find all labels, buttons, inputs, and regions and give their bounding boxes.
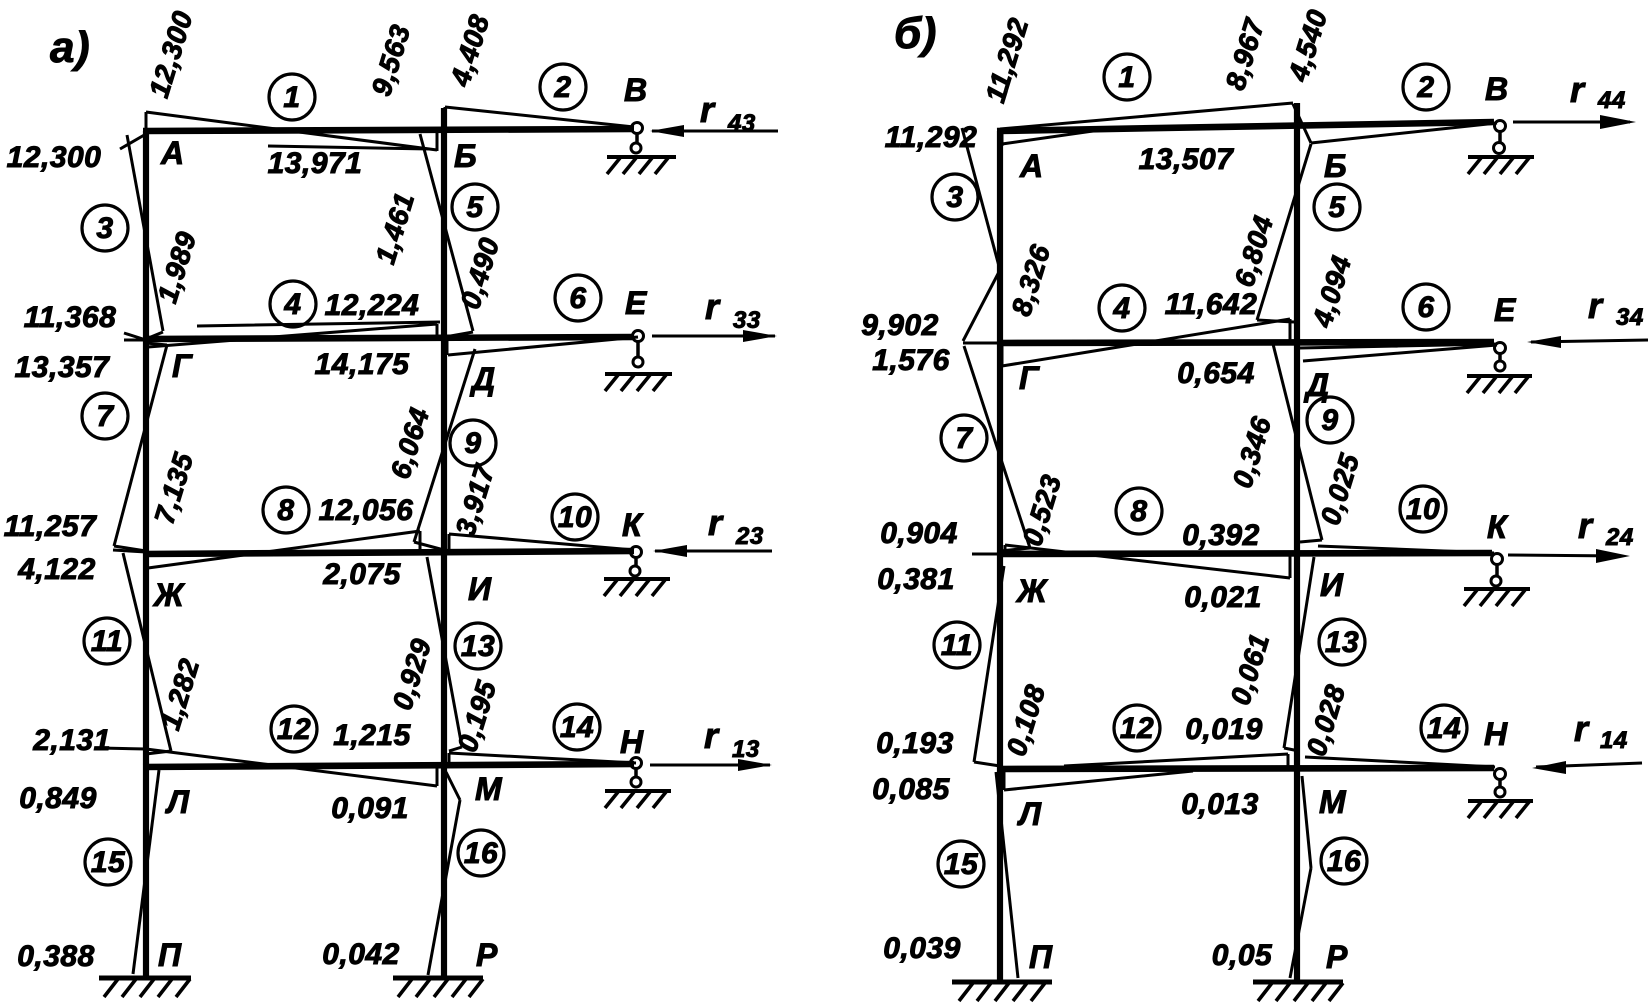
svg-text:r: r [708, 502, 724, 543]
svg-text:8: 8 [277, 494, 294, 527]
svg-text:И: И [1320, 567, 1344, 603]
svg-text:Н: Н [620, 724, 644, 760]
svg-text:0,193: 0,193 [876, 727, 954, 760]
svg-text:10: 10 [1406, 493, 1440, 526]
svg-text:0,392: 0,392 [1182, 519, 1260, 552]
svg-text:r: r [1578, 505, 1594, 546]
svg-text:9: 9 [464, 427, 481, 460]
svg-text:Л: Л [165, 784, 190, 820]
svg-text:Г: Г [1019, 360, 1040, 396]
svg-text:13: 13 [1325, 626, 1359, 659]
svg-text:Ж: Ж [1015, 573, 1049, 609]
svg-text:0,013: 0,013 [1181, 788, 1259, 821]
svg-text:0,021: 0,021 [1184, 581, 1262, 614]
svg-text:Н: Н [1484, 716, 1508, 752]
svg-text:9: 9 [1321, 404, 1338, 437]
svg-text:12: 12 [277, 713, 311, 746]
svg-text:9,902: 9,902 [861, 309, 939, 342]
svg-text:1: 1 [283, 81, 300, 114]
svg-text:12: 12 [1120, 712, 1154, 745]
svg-text:24: 24 [1605, 524, 1634, 551]
svg-text:8: 8 [1130, 495, 1147, 528]
svg-text:34: 34 [1616, 304, 1644, 331]
svg-text:П: П [158, 937, 182, 973]
svg-text:2: 2 [1416, 71, 1434, 104]
svg-text:М: М [1319, 784, 1347, 820]
svg-text:r: r [1570, 69, 1586, 110]
svg-text:13,357: 13,357 [15, 351, 111, 384]
svg-text:11: 11 [941, 629, 973, 662]
svg-text:3: 3 [946, 181, 963, 214]
svg-text:Ж: Ж [152, 577, 186, 613]
svg-text:16: 16 [464, 837, 498, 870]
svg-text:П: П [1029, 939, 1053, 975]
svg-text:2: 2 [553, 71, 571, 104]
svg-text:13,507: 13,507 [1139, 143, 1235, 176]
svg-text:4,122: 4,122 [17, 553, 96, 586]
svg-text:В: В [624, 72, 648, 108]
svg-text:3: 3 [96, 212, 113, 245]
svg-text:4: 4 [1112, 292, 1130, 325]
svg-text:11: 11 [91, 625, 123, 658]
svg-text:Р: Р [476, 937, 498, 973]
svg-text:7: 7 [955, 422, 973, 455]
svg-text:12,224: 12,224 [325, 289, 420, 322]
svg-text:6: 6 [569, 282, 586, 315]
svg-text:В: В [1485, 71, 1509, 107]
svg-text:15: 15 [944, 848, 979, 881]
svg-text:23: 23 [735, 523, 764, 550]
svg-text:0,388: 0,388 [17, 940, 95, 973]
svg-text:5: 5 [466, 191, 484, 224]
svg-text:1,215: 1,215 [333, 719, 411, 752]
svg-text:0,085: 0,085 [872, 773, 950, 806]
svg-text:r: r [700, 89, 716, 130]
svg-text:16: 16 [1327, 845, 1361, 878]
svg-text:Г: Г [172, 348, 193, 384]
svg-text:14: 14 [560, 711, 594, 744]
svg-text:1,576: 1,576 [872, 344, 950, 377]
svg-text:2,131: 2,131 [32, 724, 111, 757]
svg-text:И: И [468, 571, 492, 607]
svg-text:11,642: 11,642 [1165, 288, 1258, 321]
svg-text:1: 1 [1118, 61, 1135, 94]
svg-text:11,292: 11,292 [885, 121, 978, 154]
svg-text:2,075: 2,075 [322, 558, 401, 591]
svg-text:13,971: 13,971 [268, 147, 363, 180]
svg-text:Д: Д [469, 361, 496, 397]
svg-text:14: 14 [1600, 727, 1628, 754]
svg-text:0,039: 0,039 [883, 932, 961, 965]
svg-text:7: 7 [96, 400, 114, 433]
svg-text:Б: Б [1324, 148, 1347, 184]
svg-text:0,019: 0,019 [1185, 713, 1263, 746]
svg-text:Р: Р [1326, 939, 1348, 975]
svg-text:Е: Е [1494, 292, 1517, 328]
svg-text:5: 5 [1328, 191, 1346, 224]
svg-text:0,381: 0,381 [877, 563, 955, 596]
svg-text:r: r [1588, 285, 1604, 326]
svg-text:А: А [1019, 148, 1044, 184]
svg-text:0,042: 0,042 [322, 938, 400, 971]
svg-text:Е: Е [625, 285, 648, 321]
svg-text:r: r [704, 715, 720, 756]
svg-text:11,257: 11,257 [4, 510, 97, 543]
svg-text:А: А [160, 135, 185, 171]
svg-text:4: 4 [283, 288, 301, 321]
svg-text:0,654: 0,654 [1177, 357, 1255, 390]
svg-text:0,849: 0,849 [19, 782, 97, 815]
svg-text:Б: Б [454, 138, 477, 174]
svg-text:13: 13 [461, 630, 495, 663]
svg-text:14,175: 14,175 [315, 348, 411, 381]
svg-text:12,300: 12,300 [7, 141, 102, 174]
svg-text:а): а) [50, 23, 90, 72]
svg-text:10: 10 [558, 501, 592, 534]
svg-text:0,091: 0,091 [331, 792, 409, 825]
svg-text:14: 14 [1427, 712, 1461, 745]
svg-text:К: К [622, 507, 644, 543]
svg-text:0,05: 0,05 [1212, 939, 1273, 972]
svg-text:6: 6 [1417, 291, 1434, 324]
svg-text:15: 15 [91, 846, 126, 879]
svg-text:13: 13 [732, 736, 760, 763]
svg-text:0,904: 0,904 [880, 517, 958, 550]
svg-text:11,368: 11,368 [24, 301, 117, 334]
svg-text:r: r [1574, 708, 1590, 749]
svg-text:33: 33 [733, 307, 761, 334]
svg-text:Л: Л [1017, 796, 1042, 832]
svg-text:43: 43 [727, 110, 756, 137]
svg-text:б): б) [894, 9, 937, 58]
svg-text:r: r [705, 286, 721, 327]
svg-text:К: К [1487, 509, 1509, 545]
svg-text:44: 44 [1597, 87, 1626, 114]
svg-text:12,056: 12,056 [319, 494, 414, 527]
svg-text:М: М [475, 771, 503, 807]
